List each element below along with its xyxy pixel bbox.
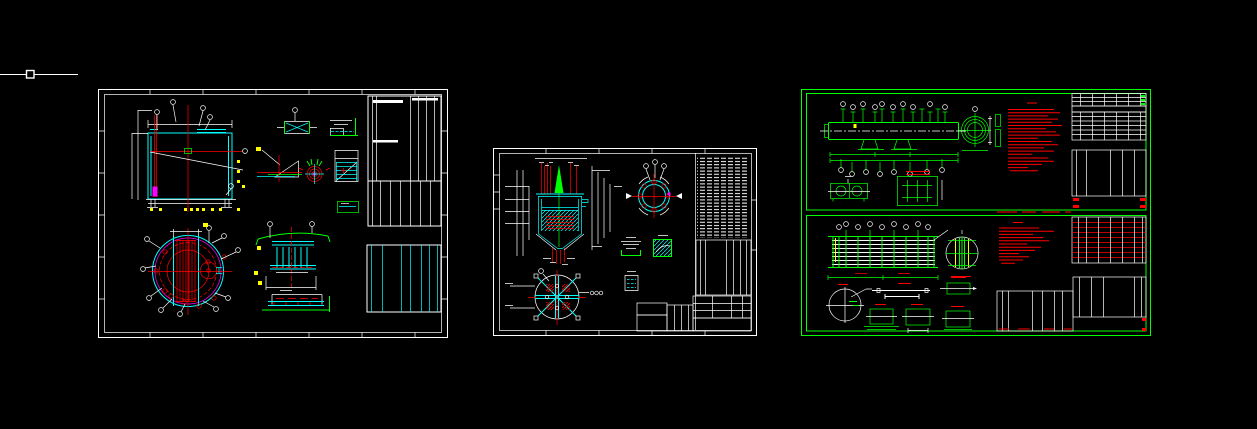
cad-viewport[interactable] — [0, 0, 1257, 429]
sheet-2-vessel-elevation-view — [505, 159, 622, 265]
sheet-1 — [99, 90, 448, 338]
sheet-2-detail-b — [654, 236, 672, 257]
sheet-1-weld-detail-a — [277, 108, 317, 134]
sheet-3-exchanger-elevation — [820, 102, 966, 177]
sheet-1-bom-table — [367, 245, 441, 312]
pickbox — [27, 71, 35, 79]
sheet-2-parts-table — [696, 240, 751, 295]
sheet-1-nozzle-detail — [335, 151, 358, 182]
sheet-3-gasket-detail-2 — [902, 305, 934, 334]
sheet-1-tube-layout-plan-view — [141, 223, 241, 316]
sheet-1-support-detail — [262, 291, 330, 313]
sheet-3-tie-rod-detail — [872, 284, 930, 300]
sheet-3-baffle-frame-detail — [898, 172, 943, 207]
sheet-2 — [494, 149, 757, 336]
agitator-arrow — [555, 165, 564, 193]
sheet-3-bundle-end-view — [946, 230, 978, 277]
sheet-1-vessel-elevation-view — [132, 100, 247, 212]
sheet-2-flange-circular-view — [626, 160, 682, 218]
sheet-3-baffle-circle-detail — [826, 285, 872, 324]
sheet-3-bottom-mid-table — [997, 291, 1073, 331]
sheet-1-coil-bundle-view — [254, 222, 330, 290]
sheet-2-detail-c — [625, 272, 638, 291]
sheet-3-saddle-detail — [828, 177, 870, 202]
sheet-3-gasket-detail-3 — [942, 307, 974, 330]
sheet-2-detail-a — [621, 238, 641, 257]
sheet-1-gland-detail — [299, 159, 330, 184]
sheet-1-frame — [99, 90, 448, 338]
sheet-3-tube-table — [1072, 217, 1146, 263]
sheet-3-tube-bundle-elevation — [828, 222, 948, 280]
sheet-1-weld-detail-b — [330, 118, 358, 136]
sheet-3-technical-notes-top — [1008, 103, 1062, 171]
crosshair-pickbox-cursor[interactable] — [0, 71, 78, 79]
sheet-3-exchanger-end-view — [958, 107, 1001, 151]
sheet-2-grid-plan-view — [505, 269, 603, 325]
sheet-3 — [802, 90, 1151, 336]
sheet-1-spec-table — [368, 96, 441, 181]
drawing-canvas[interactable] — [0, 0, 1257, 429]
sheet-3-spacer-detail — [940, 278, 977, 295]
sheet-2-title-block — [637, 296, 751, 331]
sheet-1-pad-detail — [338, 202, 359, 213]
sheet-1-bracket-detail — [256, 147, 302, 182]
sheet-3-top-right-tables — [1072, 94, 1146, 209]
sheet-3-gasket-detail-1 — [864, 305, 899, 330]
sheet-3-bottom-right-table — [1073, 277, 1146, 331]
sheet-3-technical-notes-bottom — [999, 223, 1054, 264]
sheet-1-nozzle-table — [368, 181, 441, 226]
